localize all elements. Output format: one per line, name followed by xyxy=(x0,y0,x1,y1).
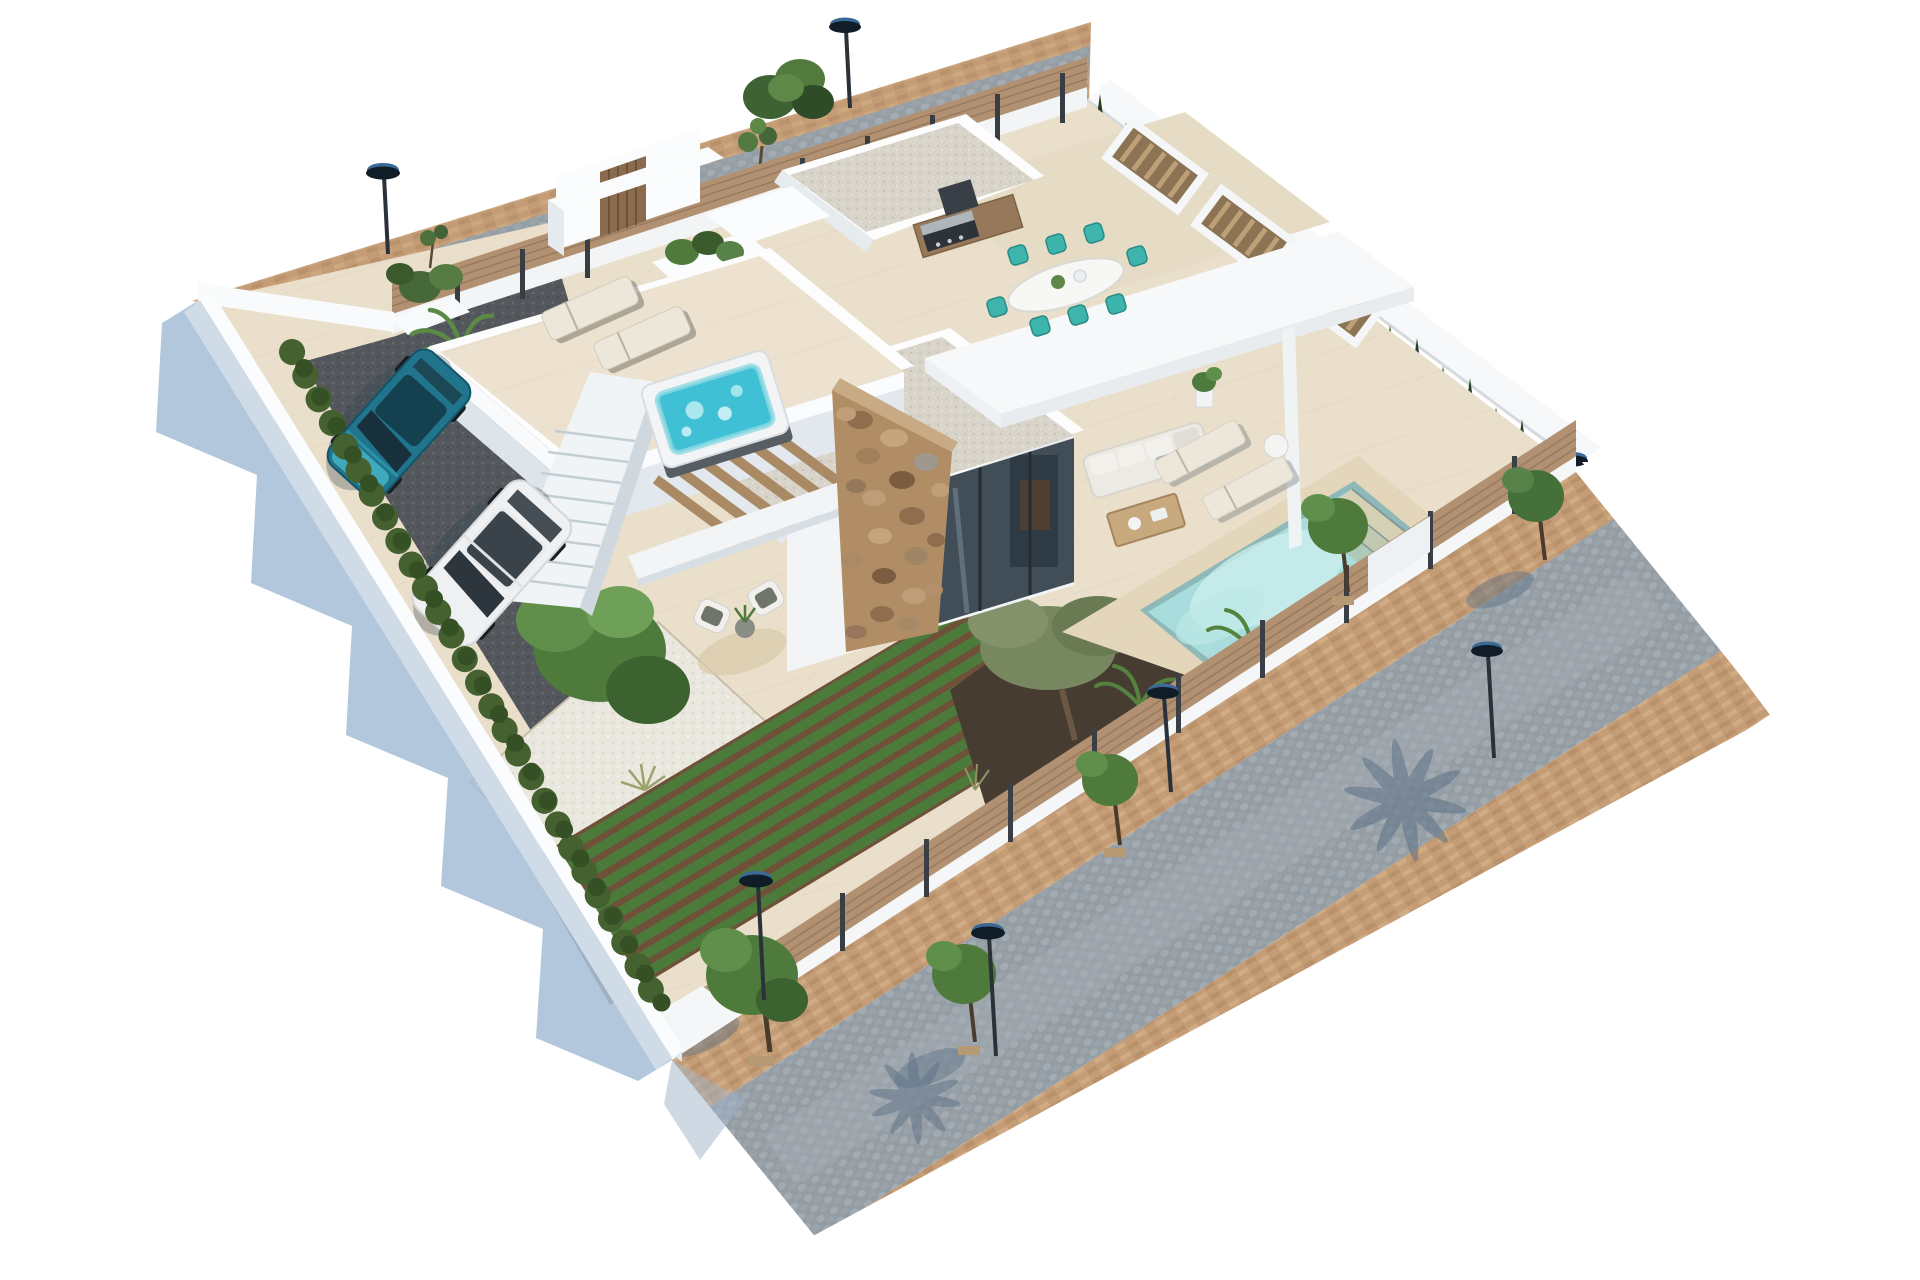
render-stage xyxy=(0,0,1920,1280)
villa-render xyxy=(0,0,1920,1280)
